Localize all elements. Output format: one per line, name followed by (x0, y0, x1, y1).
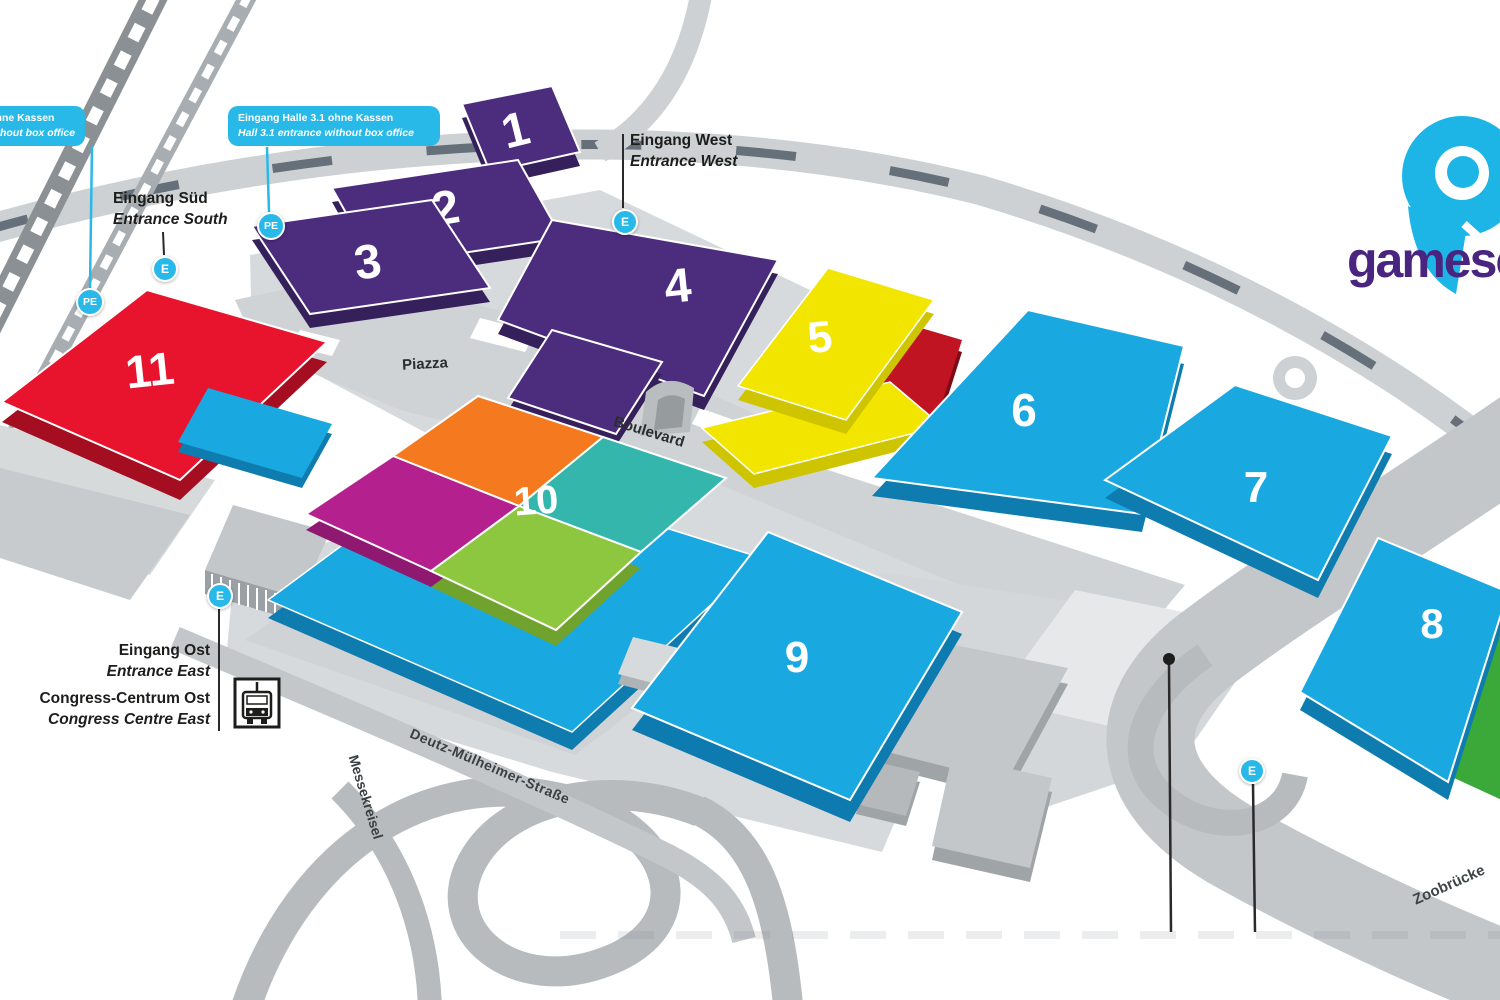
entrance-south-en: Entrance South (113, 209, 228, 230)
hall-7-number: 7 (1244, 463, 1268, 512)
label-entrance-south: Eingang Süd Entrance South (113, 188, 228, 231)
badge-entrance-zoobruecke[interactable]: E (1239, 758, 1265, 784)
label-entrance-east: Eingang Ost Entrance East (18, 640, 210, 683)
badge-entrance-south[interactable]: E (152, 256, 178, 282)
hall-6-number: 6 (1011, 384, 1037, 436)
entrance-west-en: Entrance West (630, 151, 737, 172)
label-entrance-west: Eingang West Entrance West (630, 130, 737, 173)
badge-pe-hall11[interactable]: PE (76, 288, 104, 316)
info-dot (1163, 653, 1175, 665)
gamescom-wordmark: gamescom (1347, 231, 1500, 289)
callout-hall-11-1-en: Hall 11.1 entrance without box office (0, 126, 75, 141)
label-congress-centre: Congress-Centrum Ost Congress Centre Eas… (18, 688, 210, 731)
entrance-east-de: Eingang Ost (119, 642, 210, 659)
badge-pe-hall3[interactable]: PE (257, 212, 285, 240)
callout-hall-3-1-de: Eingang Halle 3.1 ohne Kassen (238, 112, 393, 124)
callout-hall-3-1-en: Hall 3.1 entrance without box office (238, 126, 430, 141)
badge-entrance-west[interactable]: E (612, 209, 638, 235)
callout-hall-11-1-de: Eingang Halle 11.1 ohne Kassen (0, 112, 54, 124)
map-canvas: 1 2 3 4 5 6 (0, 0, 1500, 1000)
congress-de: Congress-Centrum Ost (39, 690, 210, 707)
entrance-west-de: Eingang West (630, 132, 732, 149)
callout-hall-11-1: Eingang Halle 11.1 ohne Kassen Hall 11.1… (0, 106, 85, 146)
callout-hall-3-1: Eingang Halle 3.1 ohne Kassen Hall 3.1 e… (228, 106, 440, 146)
hall-8-number: 8 (1420, 600, 1443, 647)
badge-entrance-east[interactable]: E (207, 583, 233, 609)
messekreisel-loop (245, 792, 700, 1000)
hall-5-number: 5 (805, 312, 834, 363)
tram-icon (235, 679, 279, 727)
venue-map: 1 2 3 4 5 6 (0, 0, 1500, 1000)
culdesac-hole (1285, 368, 1305, 388)
messekreisel-exit (698, 810, 788, 1000)
label-piazza: Piazza (402, 354, 449, 373)
entrance-east-en: Entrance East (18, 661, 210, 682)
entrance-south-de: Eingang Süd (113, 190, 208, 207)
hall-10-number: 10 (512, 477, 559, 524)
cut-off-legend-remnant (560, 931, 1500, 939)
congress-en: Congress Centre East (18, 709, 210, 730)
hall-9-number: 9 (785, 633, 809, 682)
hall-11-number: 11 (123, 342, 177, 399)
